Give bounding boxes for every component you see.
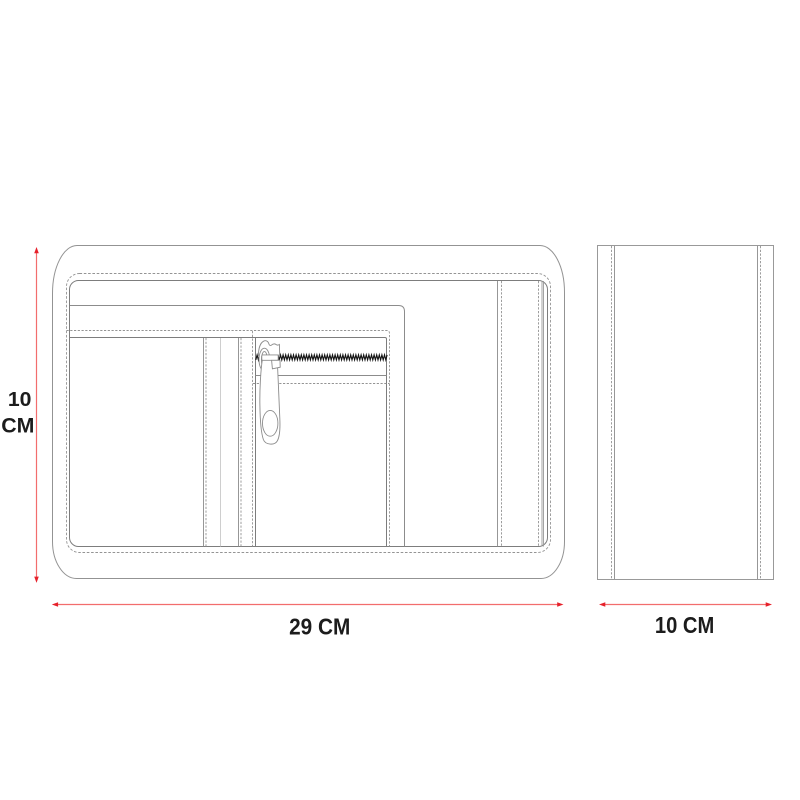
svg-text:10 CM: 10 CM (655, 612, 714, 638)
svg-text:CM: CM (1, 414, 34, 438)
svg-text:10: 10 (8, 388, 32, 411)
svg-text:29 CM: 29 CM (289, 613, 350, 639)
